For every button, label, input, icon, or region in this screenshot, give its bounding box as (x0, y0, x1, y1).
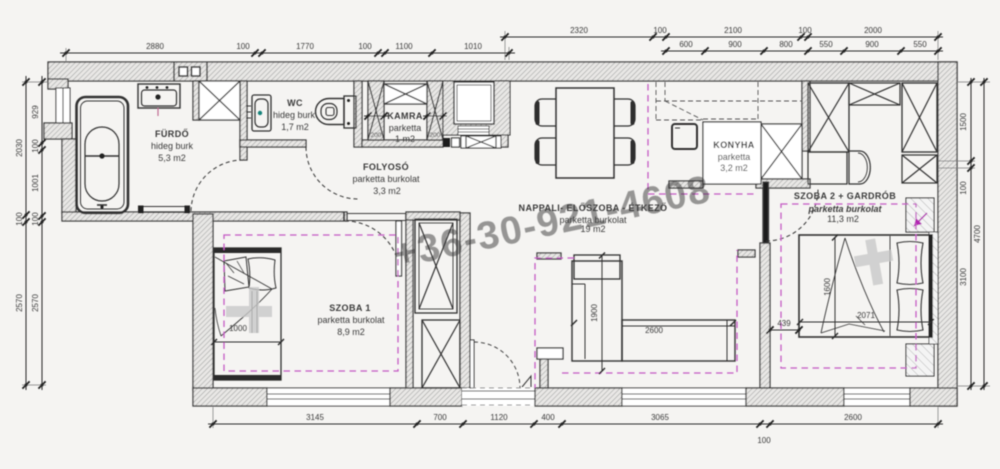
svg-text:4700: 4700 (973, 225, 982, 243)
svg-text:100: 100 (757, 436, 771, 445)
svg-text:100: 100 (358, 42, 372, 51)
svg-text:parketta burkolat: parketta burkolat (317, 315, 385, 325)
svg-text:1500: 1500 (959, 113, 968, 131)
svg-text:100: 100 (31, 212, 40, 226)
svg-text:SZOBA 2 + GARDRÓB: SZOBA 2 + GARDRÓB (794, 190, 896, 201)
svg-text:100: 100 (653, 26, 667, 35)
svg-text:2100: 2100 (724, 26, 742, 35)
svg-text:550: 550 (819, 40, 833, 49)
svg-text:439: 439 (777, 319, 791, 328)
svg-text:1 m2: 1 m2 (395, 134, 415, 144)
svg-text:1600: 1600 (823, 278, 832, 296)
svg-text:800: 800 (779, 40, 793, 49)
svg-text:8,9 m2: 8,9 m2 (337, 327, 365, 337)
svg-text:FÜRDŐ: FÜRDŐ (155, 128, 189, 139)
svg-text:parketta: parketta (718, 152, 751, 162)
svg-text:2600: 2600 (645, 326, 663, 335)
svg-text:900: 900 (728, 40, 742, 49)
svg-text:hideg burk: hideg burk (151, 141, 194, 151)
svg-text:2880: 2880 (146, 42, 164, 51)
svg-text:900: 900 (865, 40, 879, 49)
svg-text:1001: 1001 (31, 174, 40, 192)
svg-text:100: 100 (236, 42, 250, 51)
svg-text:3100: 3100 (959, 268, 968, 286)
svg-text:1100: 1100 (395, 42, 413, 51)
svg-text:3,3 m2: 3,3 m2 (373, 186, 401, 196)
svg-text:1,7 m2: 1,7 m2 (281, 122, 309, 132)
svg-text:SZOBA 1: SZOBA 1 (329, 303, 370, 313)
svg-text:200: 200 (430, 132, 441, 139)
svg-text:parketta: parketta (389, 123, 422, 133)
svg-text:parketta burkolat: parketta burkolat (352, 174, 420, 184)
svg-text:1000: 1000 (229, 324, 247, 333)
svg-text:11,3 m2: 11,3 m2 (827, 214, 859, 224)
svg-text:2320: 2320 (570, 26, 588, 35)
svg-text:NAPPALI- ELŐSZOBA - ÉTKEZŐ: NAPPALI- ELŐSZOBA - ÉTKEZŐ (519, 202, 668, 213)
svg-text:3145: 3145 (306, 413, 324, 422)
svg-text:1010: 1010 (464, 42, 482, 51)
svg-text:550: 550 (913, 40, 927, 49)
svg-text:100: 100 (798, 26, 812, 35)
svg-text:100: 100 (959, 181, 968, 195)
svg-text:1900: 1900 (590, 304, 599, 322)
svg-text:2570: 2570 (31, 294, 40, 312)
svg-text:100: 100 (15, 212, 24, 226)
svg-text:2071: 2071 (857, 311, 875, 320)
svg-text:600: 600 (679, 40, 693, 49)
svg-text:1120: 1120 (490, 413, 508, 422)
svg-text:parketta burkolat: parketta burkolat (807, 204, 882, 214)
svg-text:19 m2: 19 m2 (580, 224, 605, 234)
svg-text:2600: 2600 (844, 413, 862, 422)
svg-text:929: 929 (31, 105, 40, 119)
svg-text:2000: 2000 (864, 26, 882, 35)
svg-text:hideg burk: hideg burk (273, 110, 316, 120)
svg-text:WC: WC (287, 98, 303, 108)
svg-text:400: 400 (541, 413, 555, 422)
svg-text:200: 200 (371, 132, 382, 139)
svg-text:KAMRA: KAMRA (387, 111, 423, 121)
svg-text:2030: 2030 (15, 139, 24, 157)
svg-text:3065: 3065 (651, 413, 669, 422)
svg-text:5,3 m2: 5,3 m2 (158, 153, 186, 163)
svg-text:3,2 m2: 3,2 m2 (720, 163, 748, 173)
svg-text:1770: 1770 (296, 42, 314, 51)
svg-text:700: 700 (433, 413, 447, 422)
svg-text:2570: 2570 (15, 294, 24, 312)
svg-text:100: 100 (31, 139, 40, 153)
svg-text:FOLYOSÓ: FOLYOSÓ (363, 161, 409, 172)
svg-text:KONYHA: KONYHA (713, 140, 755, 150)
